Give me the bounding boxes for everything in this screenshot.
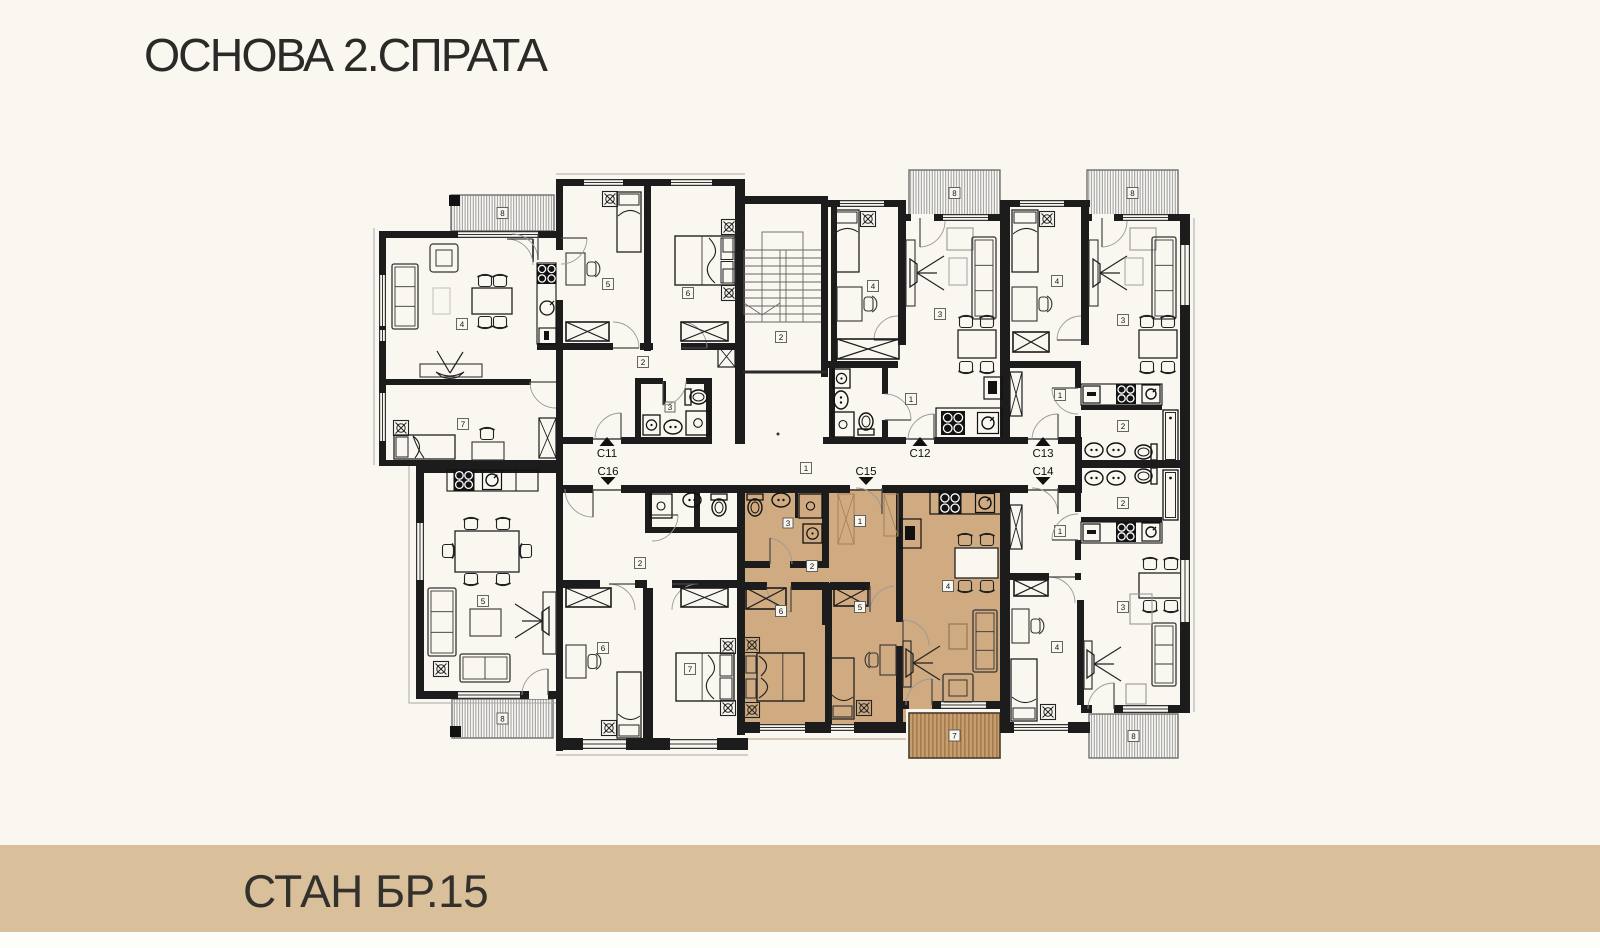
svg-text:2: 2 xyxy=(1121,422,1126,431)
svg-text:6: 6 xyxy=(686,289,691,298)
svg-text:1: 1 xyxy=(858,517,863,526)
svg-text:7: 7 xyxy=(461,420,466,429)
svg-text:СТАН БР.15: СТАН БР.15 xyxy=(243,865,488,917)
svg-text:7: 7 xyxy=(688,665,693,674)
svg-text:3: 3 xyxy=(1121,316,1126,325)
svg-text:5: 5 xyxy=(606,280,611,289)
svg-text:6: 6 xyxy=(779,607,784,616)
svg-text:2: 2 xyxy=(779,333,784,342)
svg-text:1: 1 xyxy=(804,464,809,473)
svg-text:C15: C15 xyxy=(855,466,876,478)
svg-text:5: 5 xyxy=(858,603,863,612)
svg-text:8: 8 xyxy=(1131,732,1136,741)
svg-text:C11: C11 xyxy=(597,448,617,460)
svg-text:6: 6 xyxy=(601,644,606,653)
svg-text:4: 4 xyxy=(1055,643,1060,652)
svg-text:ОСНОВА 2.СПРАТА: ОСНОВА 2.СПРАТА xyxy=(144,29,548,81)
svg-text:1: 1 xyxy=(909,395,914,404)
svg-text:7: 7 xyxy=(952,731,957,740)
svg-text:C12: C12 xyxy=(909,448,930,460)
svg-text:2: 2 xyxy=(810,562,815,571)
svg-text:8: 8 xyxy=(500,209,505,218)
svg-text:8: 8 xyxy=(1130,189,1135,198)
svg-text:3: 3 xyxy=(786,519,791,528)
svg-text:1: 1 xyxy=(1058,527,1063,536)
svg-text:4: 4 xyxy=(460,320,465,329)
svg-text:4: 4 xyxy=(1055,277,1060,286)
svg-text:3: 3 xyxy=(938,310,943,319)
svg-text:2: 2 xyxy=(1121,499,1126,508)
svg-text:C14: C14 xyxy=(1032,466,1054,478)
svg-text:4: 4 xyxy=(871,282,876,291)
svg-text:C13: C13 xyxy=(1032,448,1053,460)
svg-text:4: 4 xyxy=(946,582,951,591)
svg-text:2: 2 xyxy=(641,358,646,367)
svg-text:C16: C16 xyxy=(597,466,618,478)
svg-text:2: 2 xyxy=(638,559,643,568)
svg-text:8: 8 xyxy=(500,714,505,723)
svg-text:5: 5 xyxy=(481,597,486,606)
svg-text:3: 3 xyxy=(1121,603,1126,612)
svg-text:8: 8 xyxy=(952,189,957,198)
svg-text:1: 1 xyxy=(1058,391,1063,400)
